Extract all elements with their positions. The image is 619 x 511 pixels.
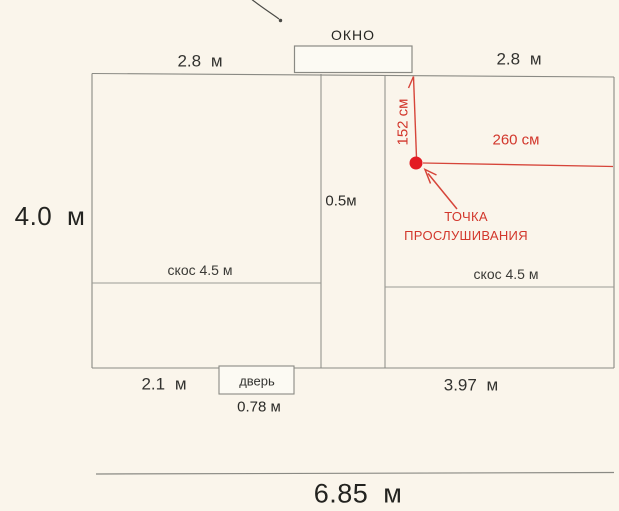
partition bbox=[321, 74, 385, 368]
pointer-line bbox=[250, 0, 282, 22]
listening-point-label: ТОЧКА ПРОСЛУШИВАНИЯ bbox=[404, 208, 528, 246]
total-width-label: 6.85 м bbox=[314, 481, 403, 508]
pointer-dot bbox=[279, 19, 282, 22]
door-label: дверь bbox=[239, 375, 275, 388]
wall-top bbox=[92, 74, 614, 78]
partition-width-label: 0.5м bbox=[325, 194, 356, 209]
overall-dimension-line bbox=[96, 473, 614, 475]
left-height-label: 4.0 м bbox=[15, 203, 86, 229]
top-width-left-label: 2.8 м bbox=[177, 53, 222, 70]
measure-260-label: 260 см bbox=[492, 133, 539, 148]
plan-drawing bbox=[0, 0, 619, 511]
listening-point-arrow bbox=[425, 170, 457, 210]
skos-left-label: скос 4.5 м bbox=[168, 263, 233, 277]
door-width-label: 0.78 м bbox=[237, 400, 281, 415]
floor-plan: ОКНО 2.8 м 2.8 м 4.0 м 0.5м скос 4.5 м с… bbox=[0, 0, 619, 511]
measure-152-label: 152 см bbox=[396, 98, 411, 145]
listening-point-dot bbox=[410, 157, 423, 170]
measure-line-260 bbox=[423, 163, 613, 167]
skos-right-label: скос 4.5 м bbox=[474, 267, 539, 281]
room-outline bbox=[92, 74, 614, 369]
window-label: ОКНО bbox=[331, 28, 375, 42]
top-width-right-label: 2.8 м bbox=[496, 51, 541, 68]
bottom-width-left-label: 2.1 м bbox=[141, 376, 186, 393]
measure-152-arrowhead bbox=[409, 77, 414, 89]
bottom-width-right-label: 3.97 м bbox=[444, 377, 499, 394]
window-box bbox=[295, 46, 413, 73]
